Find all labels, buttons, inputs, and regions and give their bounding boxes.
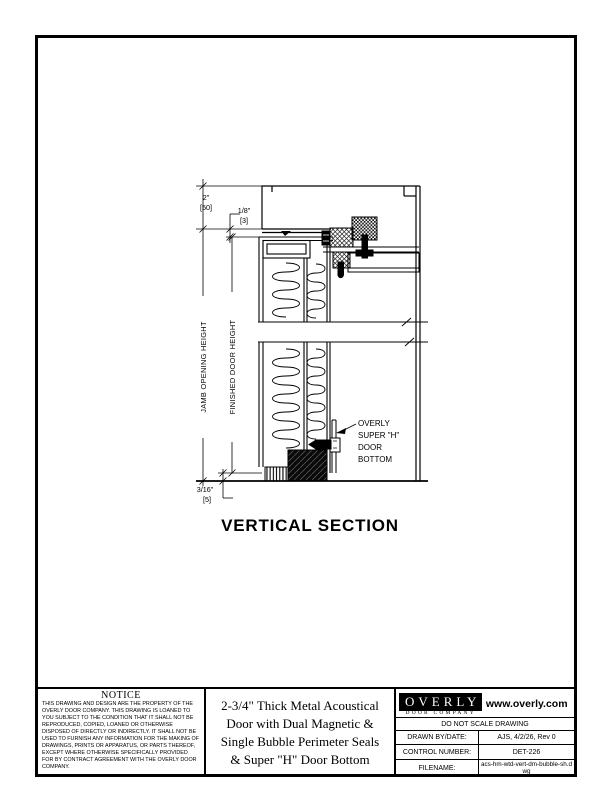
filename-value: acs-hm-wtd-vert-dm-bubble-sh.dwg: [478, 760, 574, 776]
drawing-title-line-4: & Super "H" Door Bottom: [230, 751, 369, 769]
drawn-by-value: AJS, 4/2/26, Rev 0: [478, 731, 574, 744]
control-number-value: DET-226: [478, 745, 574, 759]
sheet-border: NOTICE THIS DRAWING AND DESIGN ARE THE P…: [35, 35, 577, 777]
drawing-title-line-3: Single Bubble Perimeter Seals: [221, 733, 380, 751]
drawing-title-panel: 2-3/4" Thick Metal Acoustical Door with …: [206, 689, 396, 776]
overly-logo: OVERLY DOOR COMPANY: [399, 693, 482, 716]
logo-row: OVERLY DOOR COMPANY www.overly.com: [396, 689, 574, 717]
notice-panel: NOTICE THIS DRAWING AND DESIGN ARE THE P…: [38, 689, 206, 776]
notice-body: THIS DRAWING AND DESIGN ARE THE PROPERTY…: [42, 701, 200, 771]
filename-label: FILENAME:: [396, 760, 478, 776]
control-number-row: CONTROL NUMBER: DET-226: [396, 744, 574, 759]
overly-logo-subtext: DOOR COMPANY: [406, 710, 476, 716]
overly-logo-text: OVERLY: [399, 693, 482, 711]
notice-heading: NOTICE: [42, 690, 200, 701]
sheet-page: 2" [50] 1/8" [3] 3/16" [5] JAMB OPENING …: [0, 0, 612, 792]
website-link[interactable]: www.overly.com: [482, 698, 571, 710]
filename-row: FILENAME: acs-hm-wtd-vert-dm-bubble-sh.d…: [396, 759, 574, 776]
drawing-title-line-2: Door with Dual Magnetic &: [226, 715, 373, 733]
company-panel: OVERLY DOOR COMPANY www.overly.com DO NO…: [396, 689, 574, 776]
do-not-scale-note: DO NOT SCALE DRAWING: [396, 717, 574, 730]
drawn-by-row: DRAWN BY/DATE: AJS, 4/2/26, Rev 0: [396, 730, 574, 744]
drawing-title-line-1: 2-3/4" Thick Metal Acoustical: [221, 697, 379, 715]
title-block: NOTICE THIS DRAWING AND DESIGN ARE THE P…: [38, 687, 574, 774]
control-number-label: CONTROL NUMBER:: [396, 745, 478, 759]
drawn-by-label: DRAWN BY/DATE:: [396, 731, 478, 744]
